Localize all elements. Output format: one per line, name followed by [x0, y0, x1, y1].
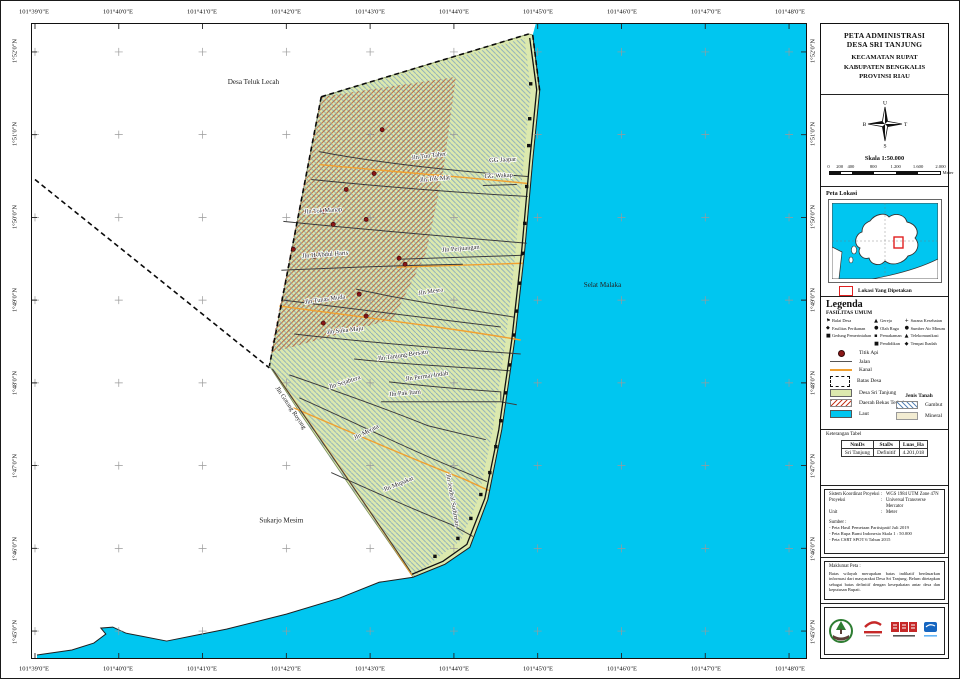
table-header-cell: NmDs: [841, 441, 873, 449]
facility-symbol: [479, 493, 482, 496]
scale-unit-label: Meter: [943, 170, 954, 175]
facility-symbol: [494, 445, 497, 448]
axis-label-left: 1°45'0"N: [12, 620, 19, 644]
table-header-cell: StaDs: [874, 441, 900, 449]
scale-tick-label: 200: [836, 164, 843, 169]
legend-facility-label: Fasilitas Perikanan: [832, 326, 865, 331]
facility-symbol: [528, 117, 531, 120]
map-subtitle-line: KABUPATEN BENGKALIS: [821, 64, 948, 73]
legend-facility-label: Sarana Kesehatan: [911, 318, 942, 323]
brg-logo: [830, 620, 852, 642]
axis-label-right: 1°47'0"N: [810, 454, 817, 478]
source-item: - Peta CSRT SPOT 6 Tahun 2015: [829, 537, 940, 543]
map-title-line: PETA ADMINISTRASI: [821, 31, 948, 40]
legend-facility-label: Pendidikan: [880, 341, 900, 346]
axis-label-bottom: 101°39'0"E: [19, 666, 49, 673]
graticule-cross: [366, 48, 374, 56]
fire-point: [380, 128, 384, 132]
graticule-cross: [199, 131, 207, 139]
table-header-cell: Luas_Ha: [899, 441, 928, 449]
road-label: GG Wakap: [484, 172, 513, 180]
title-block: PETA ADMINISTRASI DESA SRI TANJUNG KECAM…: [821, 24, 948, 95]
fire-point: [291, 247, 295, 251]
axis-label-top: 101°42'0"E: [271, 9, 301, 16]
graticule-cross: [282, 131, 290, 139]
axis-label-left: 1°48'0"N: [12, 371, 19, 395]
boundary-dashed: [35, 180, 269, 368]
graticule-cross: [115, 544, 123, 552]
graticule-cross: [115, 48, 123, 56]
attribute-table-title: Keterangan Tabel: [826, 432, 943, 437]
logos-block: [821, 604, 948, 658]
scale-tick-label: 1.200: [891, 164, 901, 169]
map-disclaimer-block: Maklumat Peta : Batas wilayah merupakan …: [821, 558, 948, 604]
graticule-cross: [282, 48, 290, 56]
map-title-line: DESA SRI TANJUNG: [821, 40, 948, 49]
facility-symbol: [521, 252, 524, 255]
area-label: Desa Teluk Lecah: [228, 78, 280, 86]
graticule-cross: [115, 131, 123, 139]
facility-symbol: [529, 82, 532, 85]
legend-facility-label: Balai Desa: [832, 318, 851, 323]
table-cell: Definitif: [874, 449, 900, 457]
laut-swatch: [830, 410, 852, 418]
legend-facility-item: ■Pendidikan: [874, 340, 901, 348]
facility-symbol: [504, 391, 507, 394]
legend-item-label: Titik Api: [859, 350, 878, 356]
legend-item-road: Jalan: [830, 359, 944, 365]
axis-label-right: 1°50'0"N: [810, 205, 817, 229]
axis-label-left: 1°49'0"N: [12, 288, 19, 312]
legend-item-label: Kanal: [859, 367, 872, 373]
table-cell: Sri Tanjung: [841, 449, 873, 457]
location-inset-legend-label: Lokasi Yang Dipetakan: [858, 288, 912, 294]
fire-point: [321, 321, 325, 325]
axis-label-right: 1°49'0"N: [810, 288, 817, 312]
coordinate-system-block: Sistem Koordinat Proyeksi:WGS 1984 UTM Z…: [821, 486, 948, 558]
legend-facility-label: Tempat Ibadah: [911, 341, 937, 346]
graticule-cross: [115, 296, 123, 304]
graticule-cross: [115, 213, 123, 221]
legend-facilities-grid: ⚑Balai Desa◆Fasilitas Perikanan■Gedung P…: [826, 317, 944, 347]
compass-west-label: B: [862, 122, 866, 128]
fire-point: [364, 314, 368, 318]
attribute-table-block: Keterangan Tabel NmDsStaDsLuas_HaSri Tan…: [821, 430, 948, 486]
location-inset-legend: Lokasi Yang Dipetakan: [839, 286, 948, 296]
axis-label-top: 101°48'0"E: [775, 9, 805, 16]
coordinate-row: Unit:Meter: [829, 510, 940, 516]
axis-label-left: 1°46'0"N: [12, 537, 19, 561]
map-subtitle-line: KECAMATAN RUPAT: [821, 54, 948, 63]
legend-item-dot: Titik Api: [830, 349, 944, 356]
legend-soil-types: Jenis Tanah GambutMineral: [896, 393, 942, 422]
scale-bar: 02004008001.2001.6002.000 Meter: [829, 164, 941, 180]
scale-text: Skala 1:50.000: [821, 155, 948, 162]
graticule-cross: [282, 213, 290, 221]
scale-tick-label: 0: [827, 164, 829, 169]
inset-map-svg: [832, 203, 938, 279]
axis-label-left: 1°50'0"N: [12, 205, 19, 229]
axis-label-top: 101°41'0"E: [187, 9, 217, 16]
road-label: GG Jaapar: [489, 156, 517, 164]
legend-item-label: Batas Desa: [857, 378, 881, 384]
legend-facility-label: Sumber Air Minum: [911, 326, 945, 331]
axis-label-right: 1°51'0"N: [810, 122, 817, 146]
scale-tick-label: 2.000: [935, 164, 945, 169]
legend-item-label: Gambut: [925, 402, 942, 408]
legend-facility-item: ◆Tempat Ibadah: [905, 340, 945, 348]
fire-point: [403, 262, 407, 266]
location-inset-map: [828, 199, 942, 283]
legend-item-label: Laut: [859, 411, 869, 417]
axis-label-right: 1°52'0"N: [810, 39, 817, 63]
legend-facility-label: Gereja: [880, 318, 892, 323]
facility-symbol: [512, 333, 515, 336]
axis-label-top: 101°40'0"E: [103, 9, 133, 16]
location-inset-title: Peta Lokasi: [826, 190, 948, 197]
facility-symbol: [456, 537, 459, 540]
graticule-cross: [115, 462, 123, 470]
axis-label-top: 101°44'0"E: [439, 9, 469, 16]
inset-islet: [849, 257, 853, 263]
axis-label-bottom: 101°43'0"E: [355, 666, 385, 673]
table-cell: 4.201,018: [899, 449, 928, 457]
partner-logo-red-swoosh: [864, 622, 882, 636]
axis-label-bottom: 101°48'0"E: [775, 666, 805, 673]
facility-symbol: [523, 222, 526, 225]
axis-label-top: 101°39'0"E: [19, 9, 49, 16]
facility-symbol: [488, 471, 491, 474]
axis-label-left: 1°51'0"N: [12, 122, 19, 146]
facility-symbol: [527, 144, 530, 147]
location-inset-block: Peta Lokasi Lokasi Yang Dipetakan: [821, 187, 948, 297]
axis-label-bottom: 101°44'0"E: [439, 666, 469, 673]
legend-item-label: Jalan: [859, 359, 870, 365]
scale-tick-label: 800: [870, 164, 877, 169]
legend-facility-item: +Sarana Kesehatan: [905, 317, 945, 325]
legend-facility-label: Pemakaman: [880, 333, 901, 338]
graticule-cross: [199, 544, 207, 552]
legend-item-label: Mineral: [925, 413, 942, 419]
inset-islet: [851, 246, 856, 254]
coordinate-row: Proyeksi:Universal Transverse Mercator: [829, 498, 940, 510]
axis-label-right: 1°46'0"N: [810, 537, 817, 561]
axis-label-bottom: 101°40'0"E: [103, 666, 133, 673]
kanal-swatch: [830, 369, 852, 371]
legend-facility-item: ▲Telekomunikasi: [905, 332, 945, 340]
area-label: Sukarjo Mesim: [259, 516, 303, 524]
legend-facility-label: Telekomunikasi: [911, 333, 939, 338]
legend-facility-label: Gedung Pemerintahan: [832, 333, 871, 338]
compass-south-label: S: [883, 144, 886, 150]
legend-facility-item: ■Gedung Pemerintahan: [826, 332, 871, 340]
legend-item-gambut: Gambut: [896, 401, 942, 409]
compass-north-label: U: [883, 101, 887, 107]
legend-facility-item: ◆Fasilitas Perikanan: [826, 325, 871, 333]
legend-facilities-title: FASILITAS UMUM: [826, 310, 944, 316]
facility-symbol: [469, 517, 472, 520]
facility-symbol: [499, 419, 502, 422]
legend-title: Legenda: [826, 299, 944, 310]
scale-tick-label: 1.600: [913, 164, 923, 169]
axis-label-bottom: 101°41'0"E: [187, 666, 217, 673]
graticule-cross: [115, 379, 123, 387]
disclaimer-text: Batas wilayah merupakan batas indikatif …: [829, 571, 940, 593]
axis-label-bottom: 101°45'0"E: [523, 666, 553, 673]
mineral-swatch: [896, 412, 918, 420]
fire-point: [364, 217, 368, 221]
legend-facility-item: ⚑Balai Desa: [826, 317, 871, 325]
graticule-cross: [199, 296, 207, 304]
graticule-cross: [199, 213, 207, 221]
logos-svg: [827, 613, 943, 649]
fire-point: [372, 171, 376, 175]
sources-list: - Peta Hasil Pemetaan Partisipatif Juli …: [829, 525, 940, 542]
legend-facility-item: ▲Gereja: [874, 317, 901, 325]
soil-types-title: Jenis Tanah: [896, 393, 942, 399]
road-swatch: [830, 361, 852, 362]
legend-facility-item: ▪Pemakaman: [874, 332, 901, 340]
axis-label-top: 101°45'0"E: [523, 9, 553, 16]
axis-label-left: 1°47'0"N: [12, 454, 19, 478]
table-row: Sri TanjungDefinitif4.201,018: [841, 449, 927, 457]
graticule-cross: [199, 379, 207, 387]
facility-symbol: [518, 281, 521, 284]
graticule-cross: [282, 462, 290, 470]
legend-facility-label: Olah Raga: [880, 326, 899, 331]
village-swatch: [830, 389, 852, 397]
gambut-swatch: [896, 401, 918, 409]
map-canvas[interactable]: Jln Tun TaherGG JaaparGG WakapJln Tok Ma…: [31, 23, 807, 659]
scale-tick-label: 400: [847, 164, 854, 169]
axis-label-bottom: 101°46'0"E: [607, 666, 637, 673]
compass-scale-block: U T S B Skala 1:50.000 02004008001.2001.…: [821, 95, 948, 187]
dot-swatch: [830, 349, 852, 356]
axis-label-top: 101°43'0"E: [355, 9, 385, 16]
disclaimer-title: Maklumat Peta :: [829, 564, 940, 569]
highlight-rect-swatch: [839, 286, 853, 296]
fire-point: [344, 187, 348, 191]
map-svg: Jln Tun TaherGG JaaparGG WakapJln Tok Ma…: [32, 24, 806, 658]
fire-point: [357, 292, 361, 296]
axis-label-right: 1°45'0"N: [810, 620, 817, 644]
map-marginalia-panel: PETA ADMINISTRASI DESA SRI TANJUNG KECAM…: [820, 23, 949, 659]
compass-rose: U T S B: [858, 99, 912, 149]
axis-label-bottom: 101°42'0"E: [271, 666, 301, 673]
facility-symbol: [515, 309, 518, 312]
compass-east-label: T: [903, 122, 907, 128]
axis-label-top: 101°46'0"E: [607, 9, 637, 16]
facility-symbol: [525, 185, 528, 188]
legend-facility-item: ●Sumber Air Minum: [905, 325, 945, 333]
batas-swatch: [830, 376, 850, 387]
fire-point: [331, 222, 335, 226]
axis-label-right: 1°48'0"N: [810, 371, 817, 395]
map-sheet: Jln Tun TaherGG JaaparGG WakapJln Tok Ma…: [0, 0, 960, 679]
legend-item-batas: Batas Desa: [830, 376, 944, 387]
axis-label-top: 101°47'0"E: [691, 9, 721, 16]
facility-symbol: [508, 363, 511, 366]
graticule-cross: [366, 544, 374, 552]
facility-symbol: [433, 555, 436, 558]
burnt-swatch: [830, 399, 852, 407]
partner-logo-red-blocks: [891, 622, 917, 637]
axis-label-left: 1°52'0"N: [12, 39, 19, 63]
graticule-cross: [199, 48, 207, 56]
attribute-table: NmDsStaDsLuas_HaSri TanjungDefinitif4.20…: [841, 440, 928, 457]
map-subtitle-line: PROVINSI RIAU: [821, 73, 948, 82]
legend-item-label: Desa Sri Tanjung: [859, 390, 896, 396]
area-label: Selat Malaka: [584, 281, 622, 289]
graticule-cross: [199, 462, 207, 470]
partner-logo-blue: [924, 622, 937, 637]
legend-facility-item: ●Olah Raga: [874, 325, 901, 333]
graticule-cross: [450, 48, 458, 56]
legend-item-mineral: Mineral: [896, 412, 942, 420]
legend-item-kanal: Kanal: [830, 367, 944, 373]
graticule-cross: [282, 544, 290, 552]
fire-point: [397, 256, 401, 260]
axis-label-bottom: 101°47'0"E: [691, 666, 721, 673]
legend-block: Legenda FASILITAS UMUM ⚑Balai Desa◆Fasil…: [821, 297, 948, 430]
